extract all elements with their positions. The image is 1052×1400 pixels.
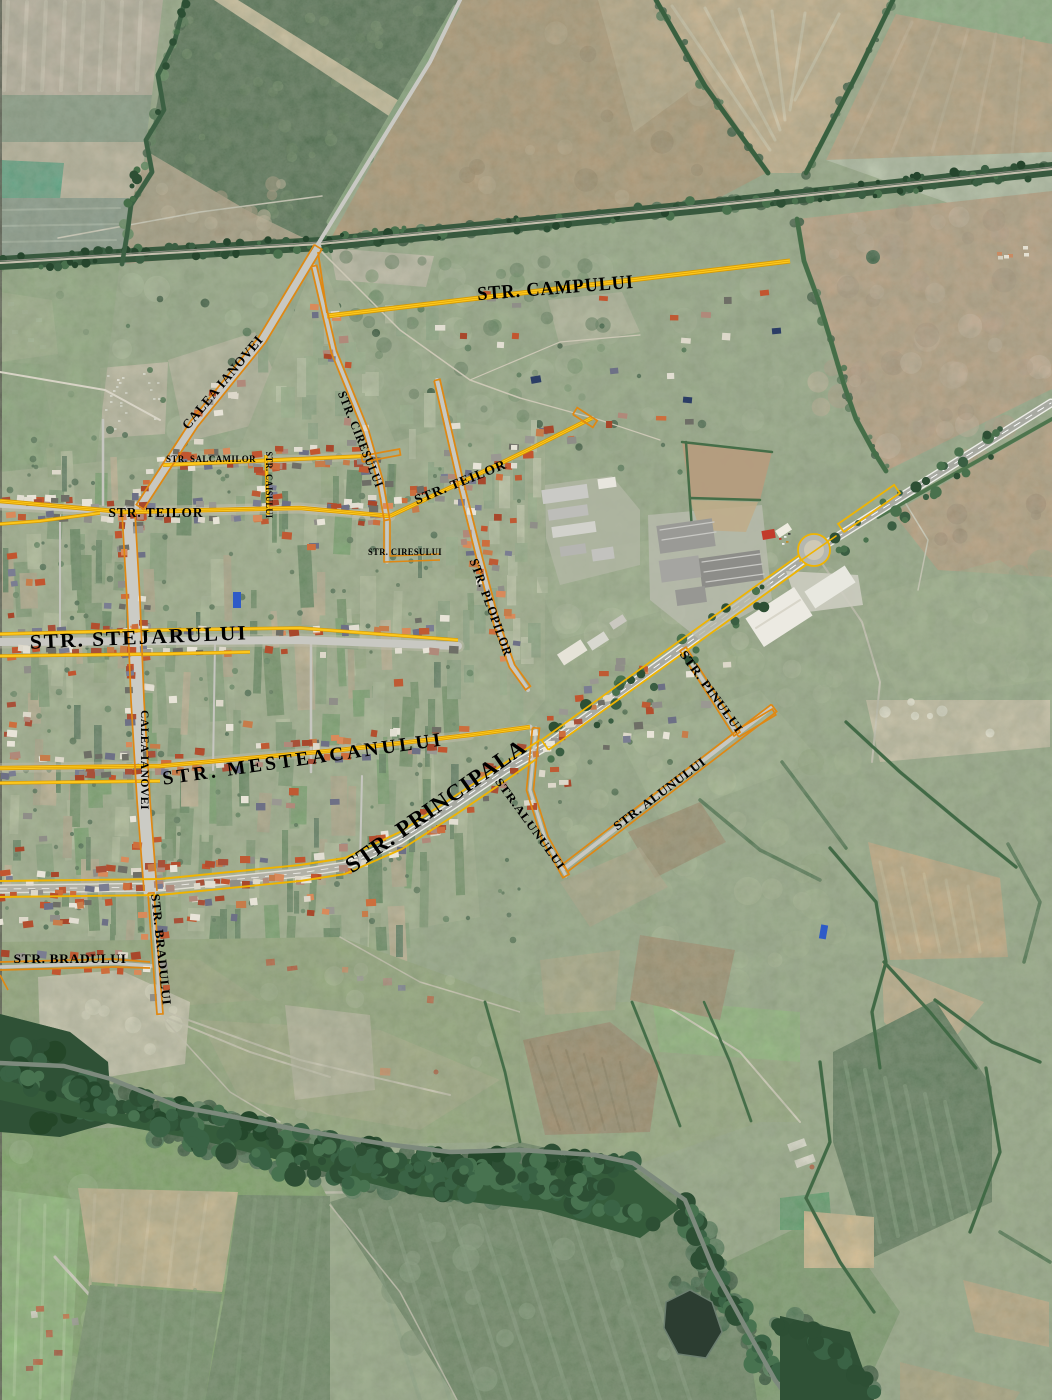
svg-text:STR. CAISULUI: STR. CAISULUI: [264, 452, 274, 519]
svg-text:STR. TEILOR: STR. TEILOR: [109, 505, 204, 520]
svg-text:STR. BRADULUI: STR. BRADULUI: [14, 951, 127, 966]
svg-text:CALEA IANOVEI: CALEA IANOVEI: [138, 710, 152, 810]
svg-text:STR. CIRESULUI: STR. CIRESULUI: [368, 548, 442, 558]
svg-text:STR. SALCAMILOR: STR. SALCAMILOR: [166, 454, 256, 465]
